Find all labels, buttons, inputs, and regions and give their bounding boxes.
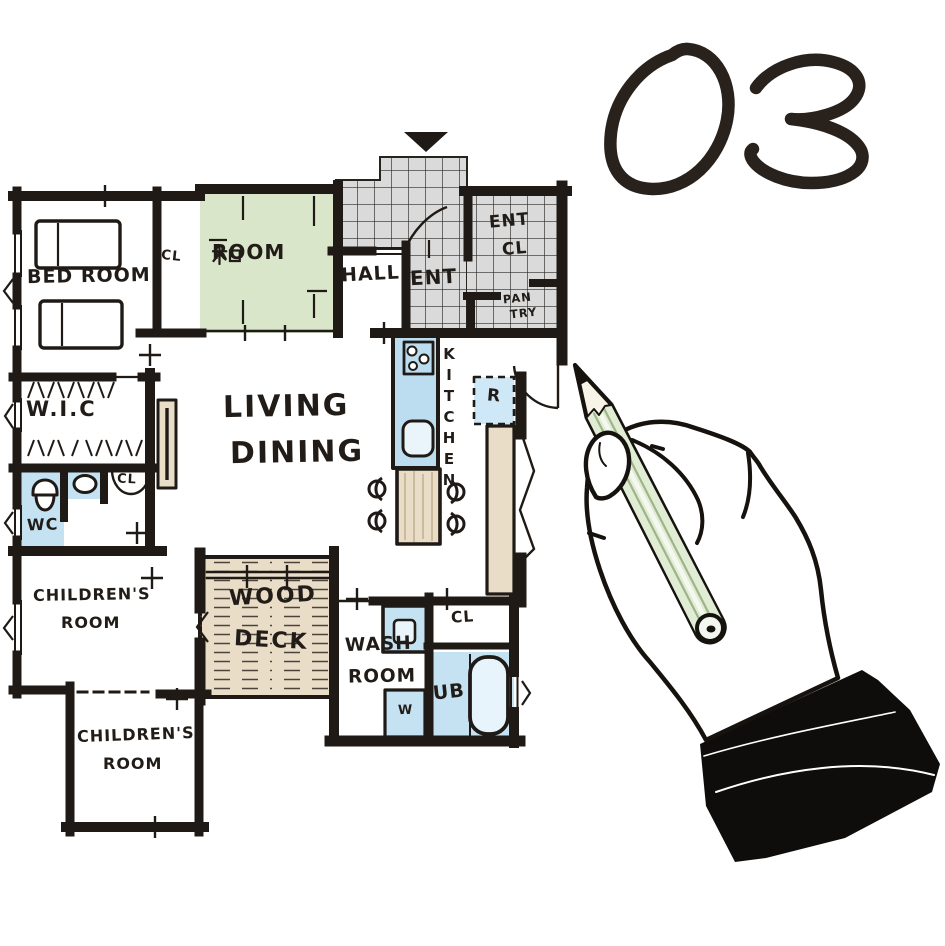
entrance-arrow-icon bbox=[404, 132, 448, 152]
wic-hatching bbox=[28, 382, 142, 456]
bed-2 bbox=[40, 301, 122, 348]
toilet-bowl bbox=[36, 495, 54, 510]
dining-table bbox=[397, 469, 440, 544]
plan-number-drawing bbox=[610, 49, 862, 189]
hand-with-pencil bbox=[575, 365, 940, 862]
burner bbox=[408, 347, 417, 356]
plan-drawing bbox=[0, 0, 945, 946]
burner bbox=[420, 355, 429, 364]
bathtub bbox=[470, 657, 508, 734]
tall-cabinet bbox=[487, 426, 514, 594]
folding-door-zigzag bbox=[520, 432, 534, 562]
kitchen-sink bbox=[403, 421, 433, 456]
closet-double-doors bbox=[112, 470, 150, 494]
vanity-basin bbox=[74, 476, 96, 493]
washroom-basin bbox=[394, 620, 415, 643]
digit-zero bbox=[610, 49, 728, 189]
toilet-tank bbox=[33, 480, 57, 495]
floor-plan-illustration: BED ROOM CL ROOM HALL ENT ENT CL PAN TRY… bbox=[0, 0, 945, 946]
washing-machine-box bbox=[385, 690, 425, 737]
japanese-room-floor bbox=[200, 189, 338, 333]
bed-1 bbox=[36, 221, 120, 268]
burner bbox=[409, 362, 417, 370]
digit-three bbox=[750, 60, 862, 183]
refrigerator-box bbox=[474, 377, 514, 424]
